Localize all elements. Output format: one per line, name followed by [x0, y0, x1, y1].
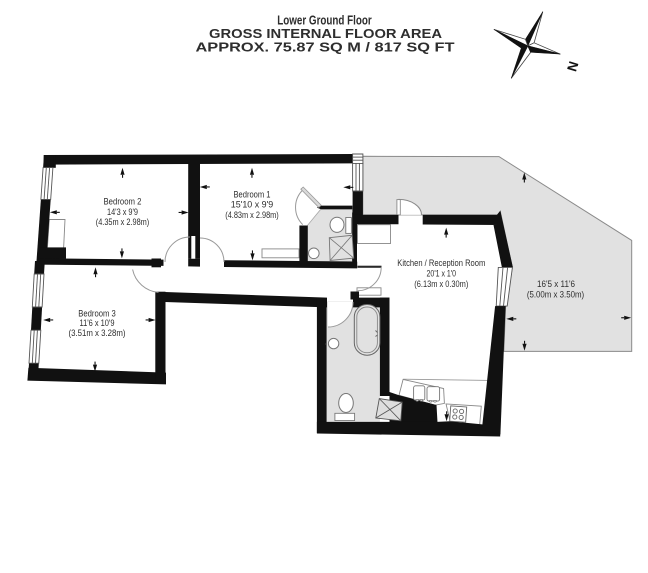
svg-text:(3.51m x 3.28m): (3.51m x 3.28m) — [69, 328, 126, 338]
svg-text:APPROX. 75.87 SQ M / 817 SQ FT: APPROX. 75.87 SQ M / 817 SQ FT — [196, 40, 455, 54]
svg-text:11'6 x 10'9: 11'6 x 10'9 — [80, 318, 115, 328]
svg-text:Bedroom 2: Bedroom 2 — [104, 197, 142, 207]
svg-text:16'5 x 11'6: 16'5 x 11'6 — [537, 279, 575, 289]
svg-text:(6.13m x 0.30m): (6.13m x 0.30m) — [414, 279, 468, 289]
svg-text:Bedroom 3: Bedroom 3 — [78, 309, 116, 319]
svg-text:14'3 x 9'9: 14'3 x 9'9 — [107, 207, 138, 217]
svg-text:15'10 x 9'9: 15'10 x 9'9 — [231, 200, 274, 210]
svg-text:Bedroom 1: Bedroom 1 — [234, 190, 271, 200]
svg-text:(5.00m x 3.50m): (5.00m x 3.50m) — [527, 290, 584, 300]
svg-text:(4.35m x 2.98m): (4.35m x 2.98m) — [96, 217, 150, 227]
svg-text:(4.83m x 2.98m): (4.83m x 2.98m) — [225, 210, 279, 220]
svg-text:Lower Ground Floor: Lower Ground Floor — [277, 14, 372, 28]
svg-text:Kitchen / Reception Room: Kitchen / Reception Room — [397, 258, 485, 268]
svg-text:GROSS INTERNAL FLOOR AREA: GROSS INTERNAL FLOOR AREA — [209, 27, 442, 41]
svg-text:20'1 x 1'0: 20'1 x 1'0 — [427, 269, 457, 279]
